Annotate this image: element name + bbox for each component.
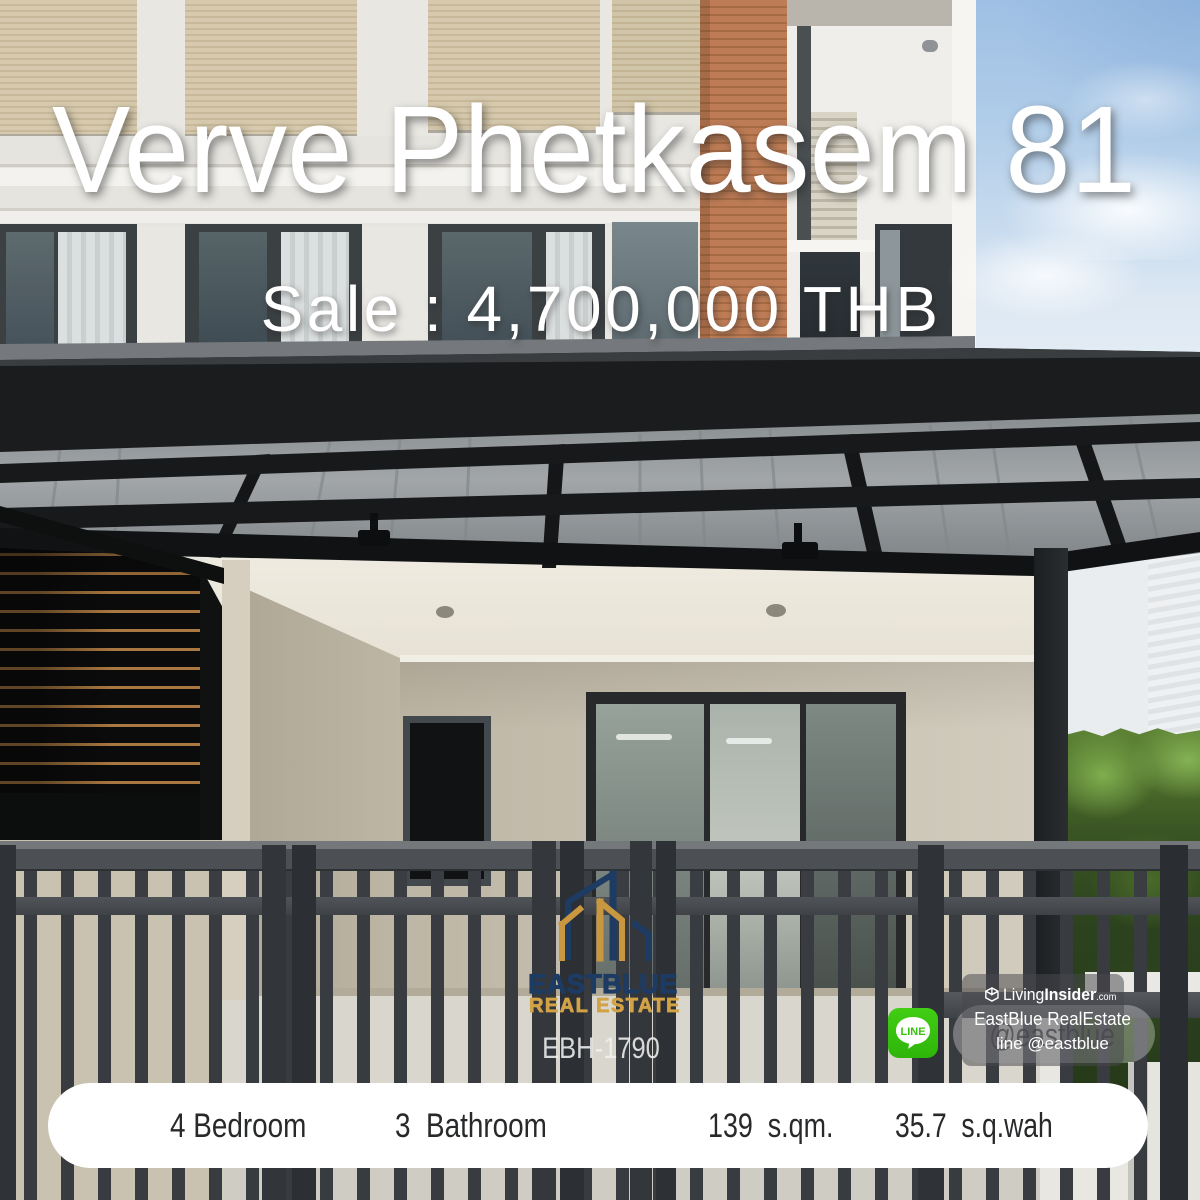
svg-text:LINE: LINE <box>900 1026 925 1038</box>
